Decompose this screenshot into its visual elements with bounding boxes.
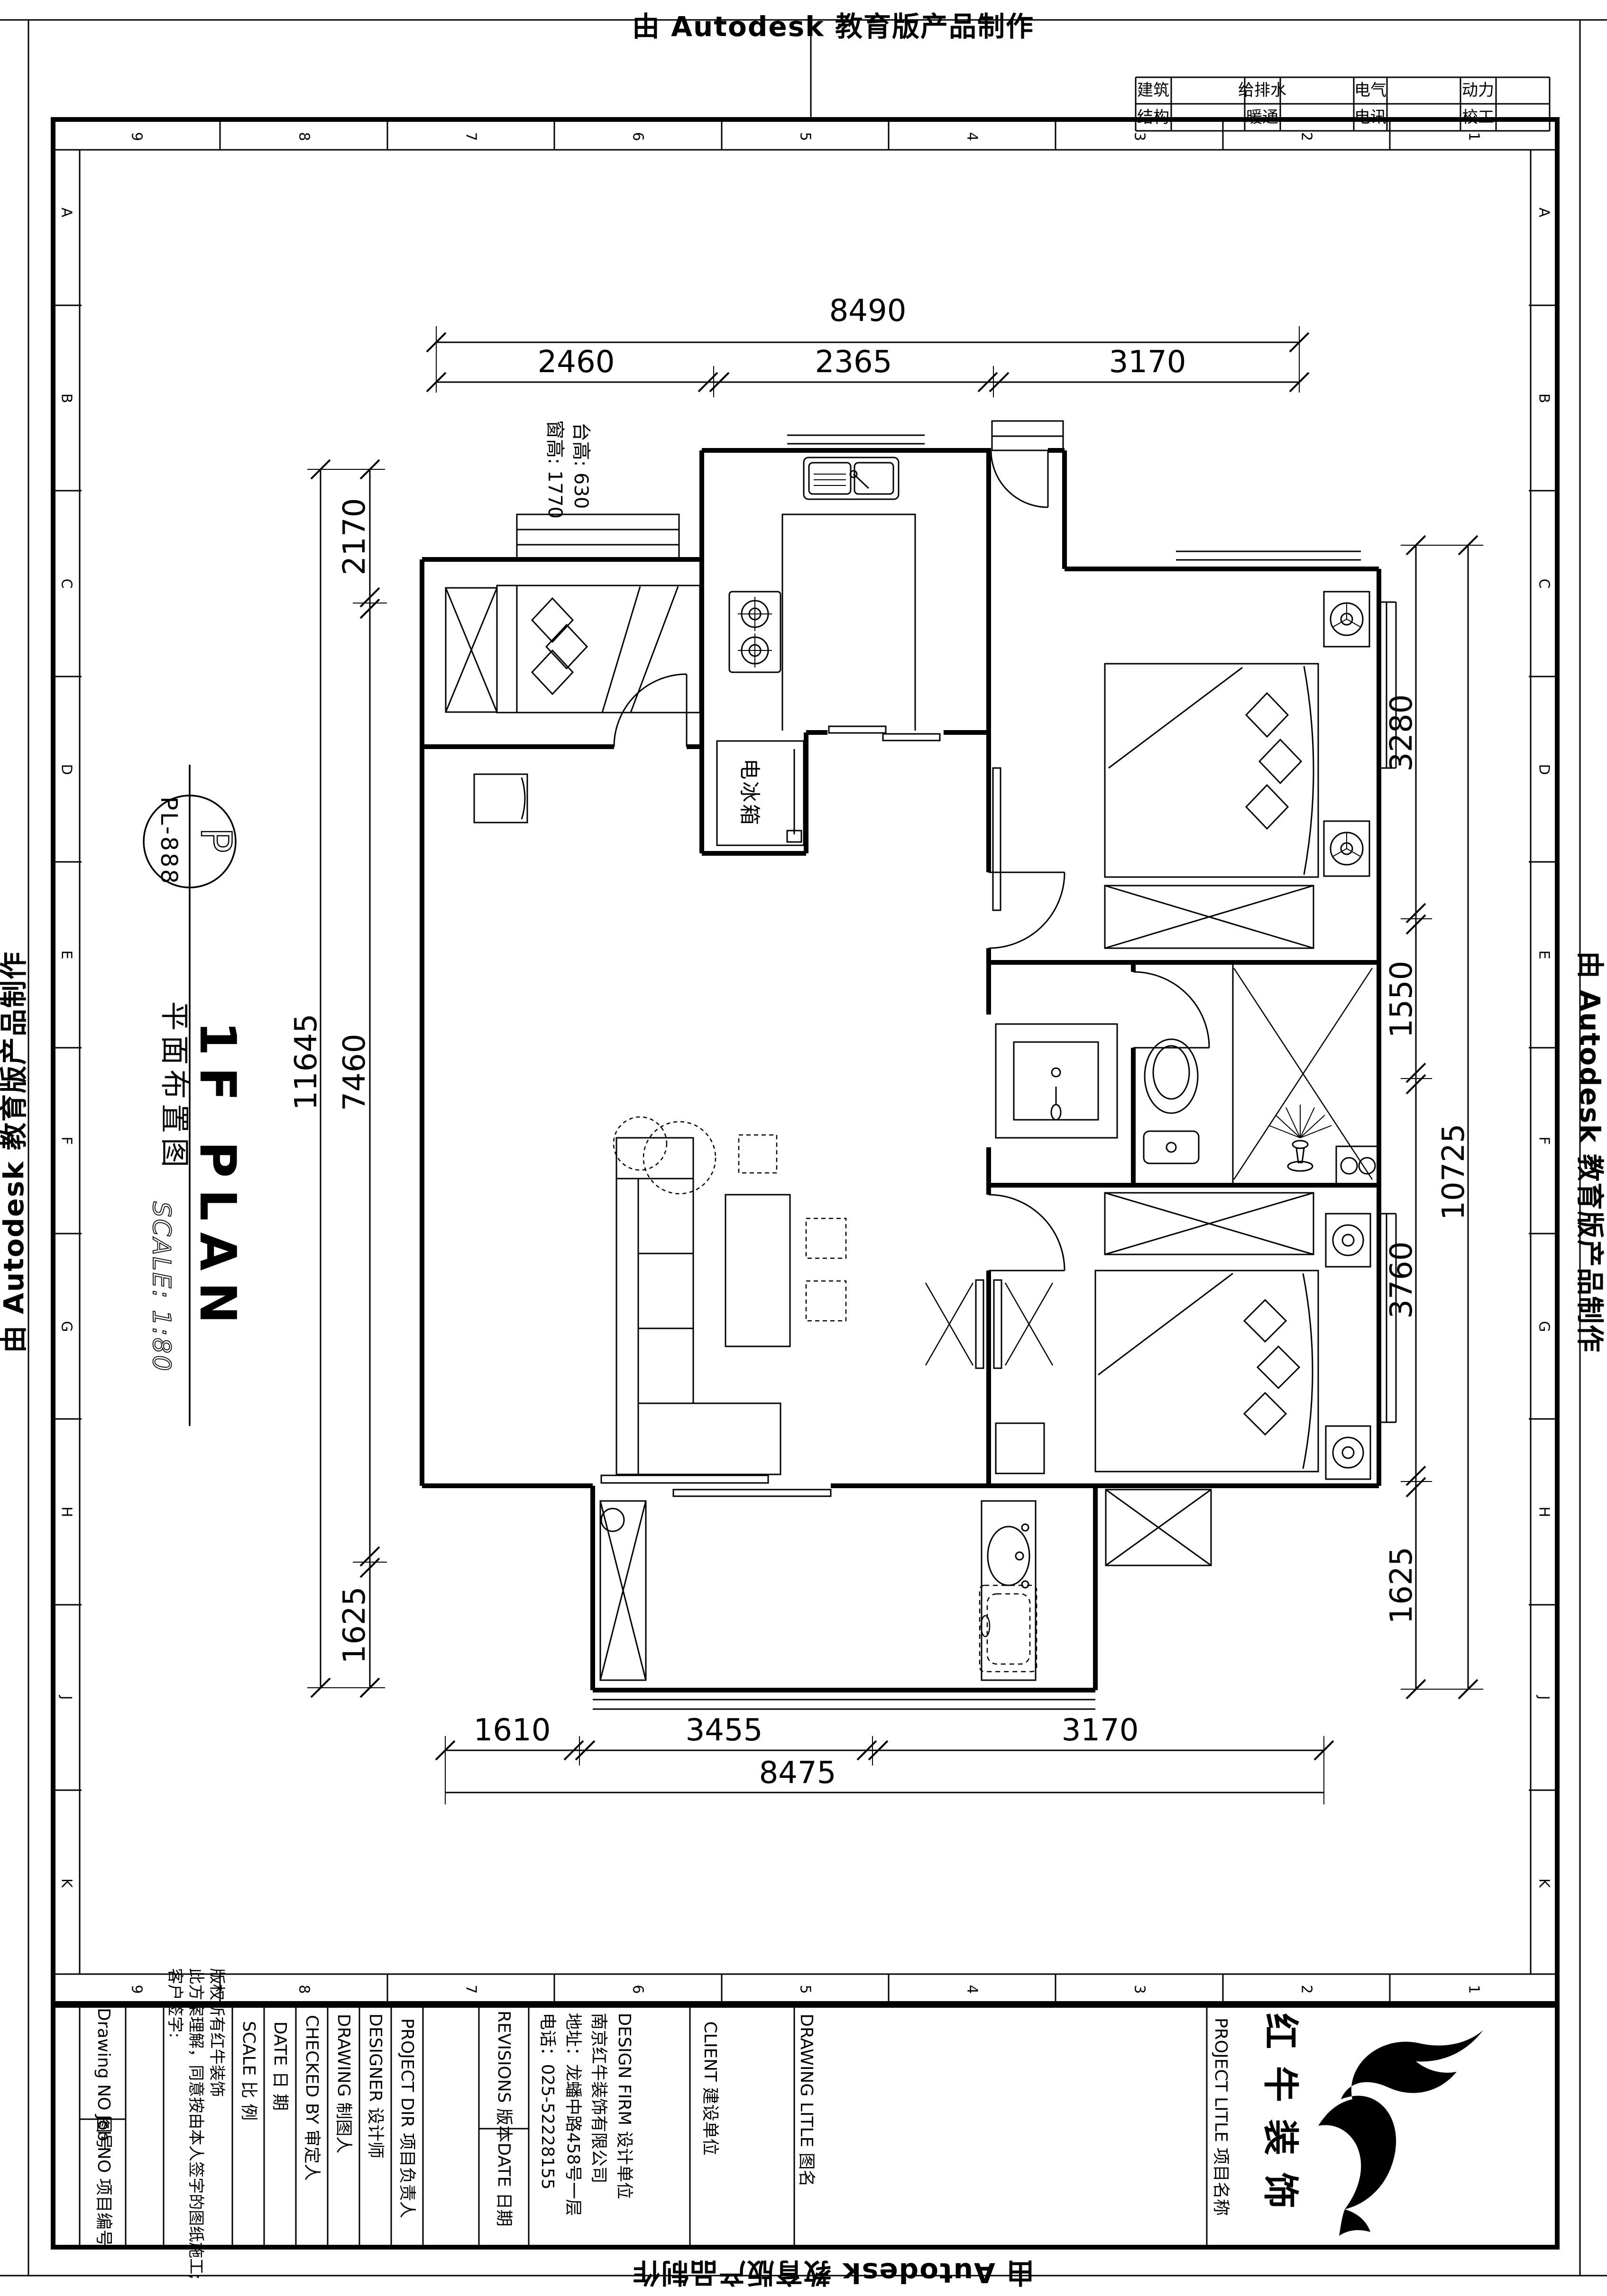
plan-title-en: 1F PLAN bbox=[190, 1021, 245, 1335]
dim-right-seg1: 3280 bbox=[1385, 695, 1418, 772]
edu-stamp-left: 由 Autodesk 教育版产品制作 bbox=[0, 951, 29, 1353]
tb-drawing-title: DRAWING LITLE 图名 bbox=[797, 2013, 816, 2186]
dim-right-total: 10725 bbox=[1437, 1124, 1470, 1220]
drawing-sheet: PL-888 P SCALE: 1:80 由 Autodesk 教育版产品制作 … bbox=[0, 0, 1607, 2296]
grid-letter-left-A: A bbox=[59, 208, 74, 218]
grid-letter-left-B: B bbox=[59, 393, 74, 403]
table-cell-hvac: 暖通 bbox=[1246, 109, 1278, 126]
grid-number-top-3: 3 bbox=[1132, 132, 1148, 141]
table-cell-check: 校工 bbox=[1462, 109, 1494, 126]
grid-letter-right-G: G bbox=[1536, 1321, 1552, 1332]
grid-letter-left-F: F bbox=[59, 1136, 74, 1144]
grid-letter-left-H: H bbox=[59, 1507, 74, 1518]
grid-letter-left-J: J bbox=[59, 1696, 74, 1700]
tb-checked-by: CHECKED BY 审定人 bbox=[302, 2015, 321, 2181]
grid-number-top-4: 4 bbox=[964, 132, 980, 141]
dim-top-seg3: 3170 bbox=[1109, 346, 1186, 379]
table-cell-structure: 结构 bbox=[1137, 109, 1169, 126]
grid-number-top-9: 9 bbox=[129, 132, 145, 141]
dim-right-seg4: 1625 bbox=[1385, 1547, 1418, 1624]
tb-rev-date: DATE 日期 bbox=[494, 2142, 513, 2226]
tb-copyright: 版权所有红牛装饰 此方案理解，同意按由本人签字的图纸施工; 客户签字: bbox=[165, 1968, 227, 2279]
grid-letter-right-F: F bbox=[1536, 1136, 1552, 1144]
frame-ticks bbox=[51, 118, 1559, 2006]
note-counter-height: 台高: 630 bbox=[570, 422, 591, 509]
dimension-extension-lines bbox=[307, 326, 1483, 1804]
dimension-ticks bbox=[311, 333, 1478, 1760]
tb-firm-name: 南京红牛装饰有限公司 bbox=[586, 2013, 611, 2216]
grid-number-top-7: 7 bbox=[463, 132, 479, 141]
tb-job-no: Job NO 项目编号 bbox=[94, 2115, 113, 2247]
grid-letter-right-C: C bbox=[1536, 579, 1552, 589]
grid-number-bottom-8: 8 bbox=[296, 1985, 312, 1994]
grid-letter-right-J: J bbox=[1536, 1696, 1552, 1700]
tb-copyright-line3: 客户签字: bbox=[165, 1968, 185, 2279]
dim-bottom-seg3: 3170 bbox=[1062, 1714, 1139, 1747]
grid-number-bottom-3: 3 bbox=[1132, 1985, 1148, 1994]
grid-number-bottom-6: 6 bbox=[630, 1985, 646, 1994]
grid-number-bottom-4: 4 bbox=[964, 1985, 980, 1994]
grid-number-bottom-1: 1 bbox=[1466, 1985, 1482, 1994]
grid-number-top-2: 2 bbox=[1299, 132, 1314, 141]
dim-right-seg3: 3760 bbox=[1385, 1242, 1418, 1319]
dim-left-seg3: 1625 bbox=[338, 1587, 371, 1664]
table-cell-power: 动力 bbox=[1462, 82, 1494, 99]
tb-copyright-line1: 版权所有红牛装饰 bbox=[206, 1968, 227, 2279]
grid-letter-left-K: K bbox=[59, 1878, 74, 1888]
tb-design-firm-label: DESIGN FIRM 设计单位 bbox=[611, 2013, 637, 2216]
grid-number-top-8: 8 bbox=[296, 132, 312, 141]
tb-project-dir: PROJECT DIR 项目负责人 bbox=[397, 2018, 416, 2218]
tb-revisions: REVISIONS 版本 bbox=[494, 2011, 513, 2142]
grid-letter-left-D: D bbox=[59, 764, 74, 775]
grid-number-bottom-2: 2 bbox=[1299, 1985, 1314, 1994]
edu-stamp-right: 由 Autodesk 教育版产品制作 bbox=[1574, 951, 1605, 1353]
dim-bottom-total: 8475 bbox=[759, 1756, 836, 1790]
bull-logo-icon bbox=[1318, 2030, 1483, 2236]
drawing-number-text: PL-888 bbox=[156, 796, 182, 886]
fridge-label: 电冰箱 bbox=[738, 759, 761, 827]
plan-walls bbox=[422, 450, 1379, 1690]
grid-letter-right-D: D bbox=[1536, 764, 1552, 775]
grid-number-bottom-5: 5 bbox=[798, 1985, 813, 1994]
plan-windows bbox=[517, 421, 1396, 1709]
tb-design-firm-block: DESIGN FIRM 设计单位 南京红牛装饰有限公司 地址：龙蟠中路458号一… bbox=[534, 2013, 637, 2216]
table-cell-arch: 建筑 bbox=[1137, 82, 1169, 99]
grid-letter-right-E: E bbox=[1536, 951, 1552, 960]
grid-number-top-1: 1 bbox=[1466, 132, 1482, 141]
grid-number-top-6: 6 bbox=[630, 132, 646, 141]
grid-letter-left-E: E bbox=[59, 951, 74, 960]
grid-letter-right-B: B bbox=[1536, 393, 1552, 403]
scale-text: SCALE: 1:80 bbox=[147, 1201, 175, 1373]
tb-copyright-line2: 此方案理解，同意按由本人签字的图纸施工; bbox=[185, 1968, 206, 2279]
dim-top-seg1: 2460 bbox=[538, 346, 615, 379]
dim-top-total: 8490 bbox=[829, 294, 907, 328]
grid-number-bottom-7: 7 bbox=[463, 1985, 479, 1994]
table-cell-telecom: 电讯 bbox=[1354, 109, 1387, 126]
grid-letter-right-H: H bbox=[1536, 1507, 1552, 1518]
dim-bottom-seg2: 3455 bbox=[686, 1714, 763, 1747]
tb-date: DATE 日 期 bbox=[270, 2022, 289, 2111]
tb-firm-phone: 电话：025-52228155 bbox=[534, 2013, 560, 2216]
plan-title-cn: 平面布置图 bbox=[158, 1001, 191, 1172]
tb-project-title: PROJECT LITLE 项目名称 bbox=[1211, 2018, 1230, 2216]
drawing-number-letter: P bbox=[192, 827, 240, 852]
plan-furniture bbox=[446, 457, 1379, 1680]
grid-number-top-5: 5 bbox=[798, 132, 813, 141]
table-cell-plumbing: 给排水 bbox=[1238, 82, 1286, 99]
plan-doors bbox=[601, 450, 1209, 1496]
tb-designer: DESIGNER 设计师 bbox=[366, 2013, 385, 2159]
dim-left-total: 11645 bbox=[290, 1014, 323, 1110]
table-cell-electrical: 电气 bbox=[1354, 82, 1387, 99]
tb-firm-address: 地址：龙蟠中路458号一层 bbox=[560, 2013, 586, 2216]
tb-drawing: DRAWING 制图人 bbox=[334, 2014, 353, 2153]
tb-logo-text: 红牛装饰 bbox=[1260, 2013, 1300, 2225]
dim-top-seg2: 2365 bbox=[815, 346, 892, 379]
tb-scale: SCALE 比 例 bbox=[239, 2021, 258, 2121]
grid-letter-right-K: K bbox=[1536, 1878, 1552, 1888]
note-window-height: 窗高: 1770 bbox=[544, 420, 565, 519]
edu-stamp-bottom: 由 Autodesk 教育版产品制作 bbox=[632, 2257, 1034, 2287]
tb-client: CLIENT 建设单位 bbox=[700, 2022, 719, 2156]
dim-left-seg1: 2170 bbox=[338, 498, 371, 576]
edu-stamp-top: 由 Autodesk 教育版产品制作 bbox=[632, 12, 1034, 42]
dim-bottom-seg1: 1610 bbox=[474, 1714, 551, 1747]
grid-letter-left-C: C bbox=[59, 579, 74, 589]
dim-right-seg2: 1550 bbox=[1385, 961, 1418, 1038]
grid-letter-right-A: A bbox=[1536, 208, 1552, 218]
grid-letter-left-G: G bbox=[59, 1321, 74, 1332]
grid-number-bottom-9: 9 bbox=[129, 1985, 145, 1994]
dim-left-seg2: 7460 bbox=[338, 1034, 371, 1111]
